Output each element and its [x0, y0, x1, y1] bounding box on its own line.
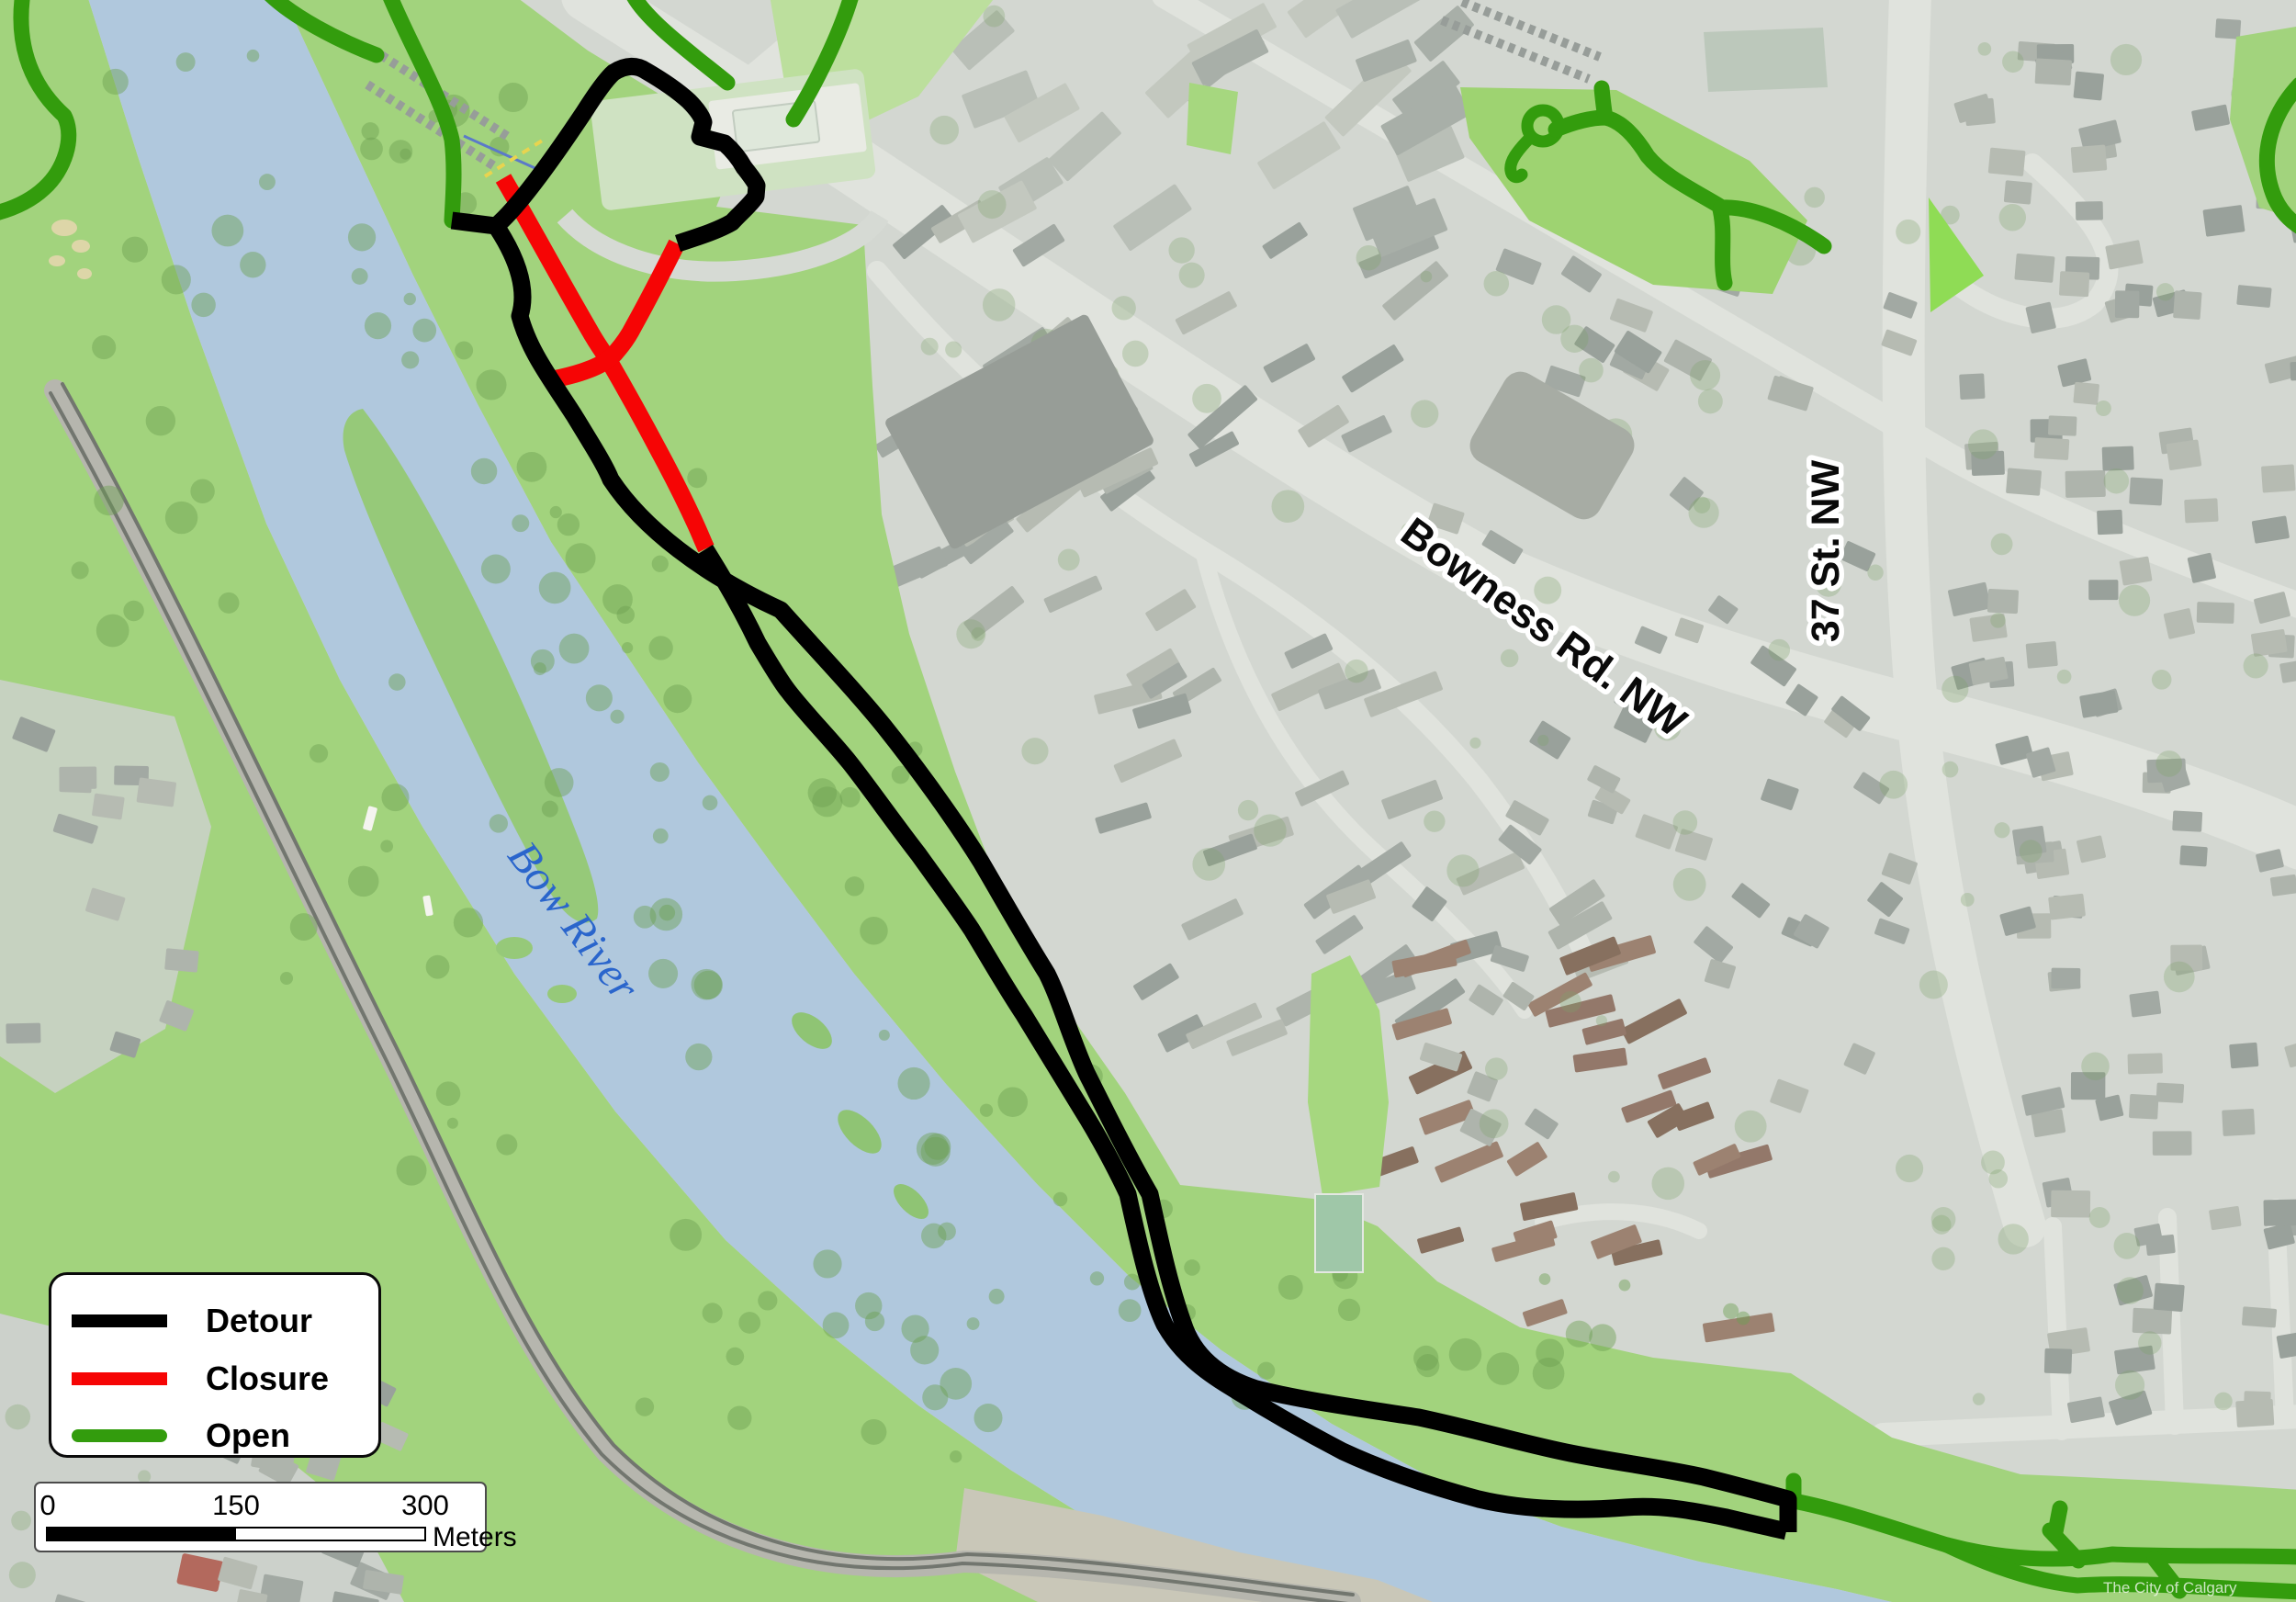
- legend-row-open: Open: [51, 1417, 378, 1454]
- legend-swatch-closure: [72, 1372, 167, 1385]
- city-watermark: The City of Calgary: [2103, 1579, 2237, 1596]
- map-stage: Bow River Bowness Rd. NW 37 St. NW The C…: [0, 0, 2296, 1602]
- scale-unit-label: Meters: [433, 1522, 517, 1553]
- scale-tick-300: 300: [401, 1489, 449, 1522]
- legend-label: Detour: [206, 1303, 312, 1339]
- open-se-connector-stub: [2055, 1508, 2060, 1532]
- legend-swatch-open: [72, 1429, 167, 1442]
- scale-bar-fill: [48, 1529, 236, 1540]
- park-small-patch: [1187, 83, 1238, 154]
- scale-bar-track: [46, 1527, 426, 1541]
- legend-label: Closure: [206, 1360, 329, 1397]
- legend-label: Open: [206, 1417, 290, 1454]
- scale-tick-150: 150: [212, 1489, 260, 1522]
- scale-bar: 0 150 300 Meters: [34, 1482, 487, 1552]
- open-park-stub-north: [1602, 88, 1605, 118]
- legend-row-detour: Detour: [51, 1303, 378, 1339]
- scale-tick-0: 0: [39, 1489, 55, 1522]
- legend-swatch-detour: [72, 1314, 167, 1327]
- 37st-road-label: 37 St. NW: [1804, 459, 1848, 642]
- legend: DetourClosureOpen: [49, 1272, 381, 1458]
- legend-row-closure: Closure: [51, 1360, 378, 1397]
